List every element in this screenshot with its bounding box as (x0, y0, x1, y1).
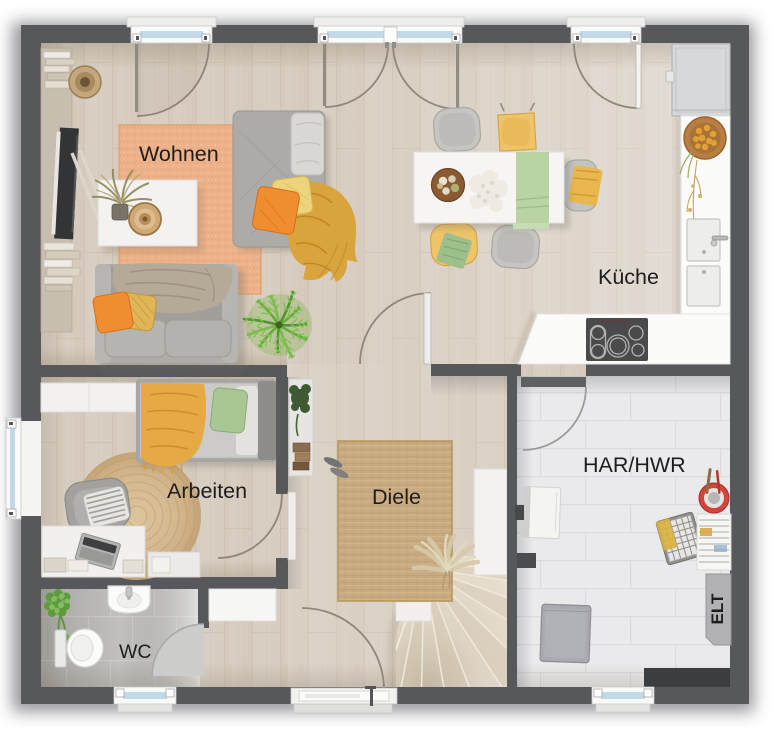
svg-text:HAR/HWR: HAR/HWR (583, 453, 686, 477)
svg-text:WC: WC (119, 641, 152, 663)
svg-text:ELT: ELT (708, 593, 727, 624)
svg-text:Küche: Küche (598, 265, 659, 289)
svg-text:Arbeiten: Arbeiten (167, 479, 247, 503)
svg-text:Diele: Diele (372, 485, 421, 509)
svg-text:Wohnen: Wohnen (139, 142, 219, 166)
